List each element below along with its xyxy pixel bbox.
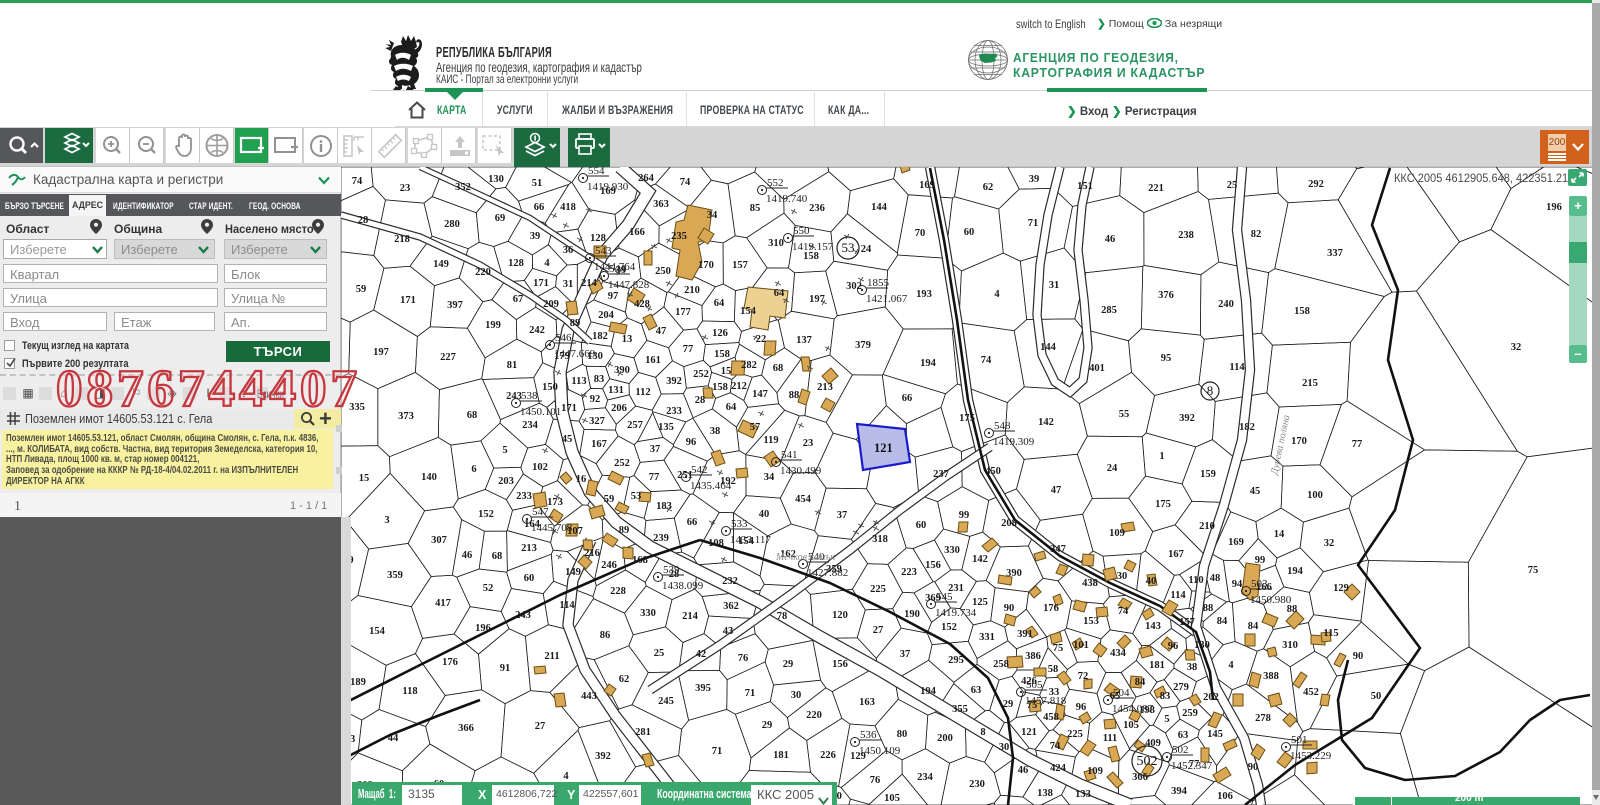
- svg-text:452: 452: [1303, 687, 1319, 698]
- svg-text:337: 337: [1327, 248, 1343, 259]
- svg-text:196: 196: [475, 623, 491, 634]
- svg-text:218: 218: [394, 234, 410, 245]
- svg-text:190: 190: [904, 609, 920, 620]
- svg-text:75: 75: [1528, 565, 1539, 576]
- svg-text:544: 544: [609, 263, 626, 275]
- svg-text:546: 546: [555, 332, 572, 344]
- svg-text:171: 171: [400, 295, 416, 306]
- svg-text:1435.464: 1435.464: [690, 480, 732, 492]
- svg-text:71: 71: [1028, 218, 1039, 229]
- svg-text:111: 111: [1103, 733, 1118, 744]
- svg-text:280: 280: [444, 219, 460, 230]
- svg-text:91: 91: [500, 663, 511, 674]
- svg-text:101: 101: [1073, 640, 1089, 651]
- svg-text:102: 102: [532, 462, 548, 473]
- svg-text:1421.067: 1421.067: [866, 293, 908, 305]
- svg-text:60: 60: [964, 227, 975, 238]
- svg-text:548: 548: [994, 420, 1011, 432]
- svg-text:23: 23: [400, 183, 411, 194]
- svg-text:34: 34: [764, 472, 775, 483]
- svg-text:194: 194: [920, 358, 937, 369]
- svg-text:31: 31: [1049, 280, 1060, 291]
- svg-text:252: 252: [693, 369, 709, 380]
- svg-text:395: 395: [695, 683, 711, 694]
- svg-text:46: 46: [462, 550, 473, 561]
- svg-text:40: 40: [759, 509, 770, 520]
- svg-text:4: 4: [994, 289, 1000, 300]
- svg-text:58: 58: [1048, 664, 1059, 675]
- svg-text:394: 394: [1171, 786, 1188, 797]
- svg-text:81: 81: [507, 360, 518, 371]
- svg-text:176: 176: [1043, 603, 1059, 614]
- svg-text:71: 71: [712, 746, 723, 757]
- svg-text:44: 44: [388, 733, 399, 744]
- svg-text:50: 50: [1371, 691, 1382, 702]
- svg-text:533: 533: [731, 518, 748, 530]
- svg-text:74: 74: [1118, 606, 1129, 617]
- svg-text:210: 210: [684, 285, 700, 296]
- svg-text:38: 38: [710, 426, 721, 437]
- svg-text:39: 39: [530, 231, 541, 242]
- svg-text:84: 84: [1135, 677, 1146, 688]
- svg-text:281: 281: [635, 727, 651, 738]
- svg-text:149: 149: [565, 567, 581, 578]
- svg-text:450: 450: [985, 466, 1001, 477]
- svg-text:545: 545: [936, 591, 953, 603]
- svg-text:438: 438: [1082, 578, 1098, 589]
- svg-text:68: 68: [773, 363, 784, 374]
- svg-text:1457.818: 1457.818: [1025, 695, 1067, 707]
- svg-text:212: 212: [731, 381, 747, 392]
- svg-text:331: 331: [979, 632, 995, 643]
- svg-text:391: 391: [1017, 629, 1033, 640]
- svg-text:307: 307: [431, 535, 447, 546]
- svg-text:112: 112: [635, 387, 650, 398]
- svg-text:68: 68: [492, 551, 503, 562]
- svg-text:46: 46: [1105, 234, 1116, 245]
- svg-text:130: 130: [1194, 640, 1210, 651]
- svg-text:37: 37: [900, 649, 911, 660]
- svg-text:137: 137: [796, 335, 812, 346]
- svg-text:295: 295: [948, 655, 964, 666]
- svg-text:29: 29: [783, 659, 794, 670]
- svg-text:128: 128: [590, 233, 606, 244]
- svg-text:88: 88: [789, 390, 800, 401]
- svg-text:90: 90: [1248, 762, 1259, 773]
- svg-text:1450.109: 1450.109: [859, 745, 901, 757]
- svg-text:401: 401: [1089, 363, 1105, 374]
- svg-text:149: 149: [433, 259, 449, 270]
- svg-text:536: 536: [860, 729, 877, 741]
- svg-text:1452.347: 1452.347: [1171, 760, 1213, 772]
- svg-text:106: 106: [1217, 791, 1233, 802]
- svg-text:216: 216: [584, 548, 600, 559]
- svg-text:38: 38: [1187, 662, 1198, 673]
- svg-text:171: 171: [561, 403, 577, 414]
- svg-text:80: 80: [897, 729, 908, 740]
- svg-text:177: 177: [675, 307, 691, 318]
- svg-text:31: 31: [563, 279, 574, 290]
- svg-text:22: 22: [756, 334, 767, 345]
- svg-text:66: 66: [534, 202, 545, 213]
- svg-text:15: 15: [721, 366, 732, 377]
- svg-text:373: 373: [398, 411, 414, 422]
- svg-text:166: 166: [629, 227, 645, 238]
- svg-text:194: 194: [1287, 566, 1304, 577]
- svg-text:131: 131: [608, 385, 624, 396]
- svg-text:152: 152: [941, 622, 957, 633]
- svg-text:47: 47: [656, 326, 667, 337]
- svg-text:279: 279: [1173, 682, 1189, 693]
- svg-text:176: 176: [442, 657, 458, 668]
- svg-text:88: 88: [1203, 603, 1214, 614]
- svg-text:145: 145: [1207, 729, 1223, 740]
- svg-text:30: 30: [999, 742, 1010, 753]
- svg-text:225: 225: [1067, 729, 1083, 740]
- svg-text:454: 454: [795, 494, 812, 505]
- svg-text:25: 25: [1227, 180, 1238, 191]
- svg-text:1453.229: 1453.229: [1290, 750, 1332, 762]
- svg-text:352: 352: [455, 182, 471, 193]
- svg-text:182: 182: [1239, 422, 1255, 433]
- svg-text:206: 206: [611, 403, 627, 414]
- svg-text:388: 388: [1263, 671, 1279, 682]
- svg-text:74: 74: [1050, 741, 1061, 752]
- svg-text:154: 154: [369, 626, 386, 637]
- svg-text:83: 83: [1160, 691, 1171, 702]
- svg-text:118: 118: [402, 686, 417, 697]
- svg-text:72: 72: [1078, 671, 1089, 682]
- svg-text:538: 538: [521, 390, 538, 402]
- svg-text:170: 170: [698, 260, 714, 271]
- svg-text:541: 541: [781, 449, 798, 461]
- svg-text:366: 366: [458, 723, 474, 734]
- svg-text:539: 539: [663, 564, 680, 576]
- svg-text:213: 213: [521, 543, 537, 554]
- svg-text:225: 225: [870, 584, 886, 595]
- svg-text:74: 74: [981, 355, 992, 366]
- svg-text:13: 13: [622, 334, 633, 345]
- svg-text:121: 121: [874, 441, 893, 455]
- svg-text:167: 167: [1168, 549, 1184, 560]
- svg-text:45: 45: [562, 434, 573, 445]
- svg-text:76: 76: [738, 653, 749, 664]
- svg-text:252: 252: [614, 458, 630, 469]
- svg-text:109: 109: [1087, 766, 1103, 777]
- svg-text:71: 71: [745, 688, 756, 699]
- svg-text:140: 140: [421, 472, 437, 483]
- svg-text:89: 89: [570, 318, 581, 329]
- svg-text:213: 213: [817, 382, 833, 393]
- svg-text:16: 16: [576, 474, 587, 485]
- svg-text:550: 550: [793, 225, 810, 237]
- svg-text:105: 105: [1123, 720, 1139, 731]
- svg-text:29: 29: [1003, 699, 1014, 710]
- svg-text:168: 168: [632, 555, 648, 566]
- svg-text:128: 128: [508, 258, 524, 269]
- svg-text:285: 285: [1101, 305, 1117, 316]
- svg-text:397: 397: [447, 300, 463, 311]
- svg-text:60: 60: [524, 573, 535, 584]
- svg-text:318: 318: [872, 534, 888, 545]
- svg-text:233: 233: [516, 491, 532, 502]
- svg-text:175: 175: [1155, 499, 1171, 510]
- svg-text:169: 169: [919, 180, 935, 191]
- svg-text:24: 24: [861, 244, 872, 255]
- svg-text:48: 48: [1210, 573, 1221, 584]
- svg-text:1450.980: 1450.980: [1250, 594, 1292, 606]
- svg-text:228: 228: [610, 586, 626, 597]
- svg-text:209: 209: [543, 299, 559, 310]
- svg-text:310: 310: [1282, 640, 1298, 651]
- svg-text:142: 142: [972, 554, 988, 565]
- svg-text:196: 196: [1546, 202, 1562, 213]
- svg-text:359: 359: [387, 570, 403, 581]
- svg-text:214: 214: [581, 278, 598, 289]
- svg-text:28: 28: [358, 215, 369, 226]
- svg-text:143: 143: [1145, 621, 1161, 632]
- svg-text:8: 8: [1207, 383, 1214, 398]
- svg-text:70: 70: [915, 228, 926, 239]
- svg-text:96: 96: [1168, 641, 1179, 652]
- svg-text:327: 327: [589, 416, 605, 427]
- svg-text:84: 84: [1248, 621, 1259, 632]
- svg-text:189: 189: [350, 677, 366, 688]
- svg-text:86: 86: [600, 630, 611, 641]
- svg-text:4: 4: [544, 258, 550, 269]
- svg-text:8: 8: [980, 727, 985, 738]
- svg-text:62: 62: [983, 182, 994, 193]
- svg-text:113: 113: [571, 376, 586, 387]
- svg-text:32: 32: [1511, 342, 1522, 353]
- svg-text:502: 502: [1137, 754, 1158, 769]
- svg-text:200: 200: [937, 733, 953, 744]
- svg-text:236: 236: [809, 203, 825, 214]
- svg-text:1450.101: 1450.101: [520, 406, 561, 418]
- svg-text:94: 94: [1232, 579, 1243, 590]
- svg-text:64: 64: [714, 298, 725, 309]
- svg-text:1447.828: 1447.828: [608, 279, 650, 291]
- svg-text:96: 96: [686, 437, 697, 448]
- svg-text:226: 226: [820, 750, 836, 761]
- svg-text:1: 1: [1159, 451, 1164, 462]
- svg-text:30: 30: [1117, 571, 1128, 582]
- svg-text:121: 121: [1021, 727, 1037, 738]
- svg-text:547: 547: [532, 506, 549, 518]
- svg-text:153: 153: [1083, 616, 1099, 627]
- svg-text:4: 4: [1228, 660, 1234, 671]
- svg-text:52: 52: [483, 583, 494, 594]
- svg-text:554: 554: [588, 167, 605, 177]
- svg-text:170: 170: [1291, 436, 1307, 447]
- svg-text:211: 211: [544, 651, 559, 662]
- svg-text:76: 76: [870, 775, 881, 786]
- svg-text:42: 42: [696, 649, 707, 660]
- svg-text:232: 232: [722, 576, 738, 587]
- svg-text:135: 135: [658, 422, 674, 433]
- svg-text:347: 347: [1050, 544, 1066, 555]
- svg-text:114: 114: [559, 600, 575, 611]
- svg-text:428: 428: [634, 299, 650, 310]
- svg-text:159: 159: [1200, 469, 1216, 480]
- svg-text:64: 64: [726, 402, 737, 413]
- svg-text:245: 245: [658, 696, 674, 707]
- svg-text:379: 379: [855, 340, 871, 351]
- svg-text:220: 220: [806, 710, 822, 721]
- svg-text:84: 84: [1217, 616, 1228, 627]
- svg-text:330: 330: [640, 608, 656, 619]
- svg-text:151: 151: [1077, 181, 1093, 192]
- svg-text:158: 158: [712, 382, 728, 393]
- svg-text:242: 242: [529, 325, 545, 336]
- svg-text:92: 92: [590, 394, 601, 405]
- svg-text:5: 5: [1164, 714, 1169, 725]
- svg-text:46: 46: [1018, 765, 1029, 776]
- svg-text:119: 119: [763, 435, 778, 446]
- svg-text:25: 25: [654, 648, 665, 659]
- svg-text:78: 78: [777, 611, 788, 622]
- svg-text:250: 250: [655, 266, 671, 277]
- svg-text:30: 30: [791, 690, 802, 701]
- svg-text:59: 59: [356, 284, 367, 295]
- svg-text:24: 24: [1107, 463, 1118, 474]
- svg-text:114: 114: [1229, 362, 1245, 373]
- svg-text:233: 233: [666, 406, 682, 417]
- svg-text:57: 57: [750, 422, 761, 433]
- svg-text:114: 114: [1170, 590, 1186, 601]
- svg-text:34: 34: [707, 210, 718, 221]
- svg-text:458: 458: [1043, 712, 1059, 723]
- svg-text:77: 77: [649, 472, 660, 483]
- svg-text:63: 63: [971, 685, 982, 696]
- svg-text:543: 543: [595, 245, 612, 257]
- svg-text:194: 194: [920, 686, 937, 697]
- svg-text:1419.734: 1419.734: [935, 607, 977, 619]
- svg-text:258: 258: [993, 659, 1009, 670]
- svg-text:14: 14: [1274, 529, 1285, 540]
- svg-text:157: 157: [1179, 617, 1195, 628]
- svg-text:1454.087: 1454.087: [1112, 703, 1154, 715]
- svg-text:120: 120: [832, 610, 848, 621]
- svg-text:115: 115: [1323, 628, 1338, 639]
- svg-text:208: 208: [1001, 518, 1017, 529]
- svg-text:203: 203: [498, 476, 514, 487]
- svg-text:282: 282: [741, 360, 757, 371]
- svg-text:85: 85: [750, 203, 761, 214]
- svg-text:197: 197: [373, 347, 389, 358]
- svg-text:74: 74: [352, 176, 363, 187]
- svg-text:193: 193: [916, 289, 932, 300]
- svg-text:1447.669: 1447.669: [554, 348, 596, 360]
- svg-text:214: 214: [682, 611, 699, 622]
- svg-text:5: 5: [502, 445, 507, 456]
- svg-text:55: 55: [1119, 409, 1130, 420]
- svg-text:97: 97: [608, 291, 619, 302]
- svg-text:238: 238: [1178, 230, 1194, 241]
- svg-text:502: 502: [1172, 744, 1189, 756]
- svg-text:77: 77: [683, 344, 694, 355]
- svg-text:243: 243: [515, 610, 531, 621]
- svg-text:147: 147: [752, 389, 768, 400]
- svg-text:105: 105: [884, 793, 900, 804]
- svg-text:235: 235: [671, 231, 687, 242]
- svg-text:133: 133: [1075, 789, 1091, 800]
- svg-text:60: 60: [916, 520, 927, 531]
- svg-text:199: 199: [485, 320, 501, 331]
- svg-text:264: 264: [638, 173, 655, 184]
- svg-text:51: 51: [532, 178, 543, 189]
- svg-text:27: 27: [873, 625, 884, 636]
- svg-text:138: 138: [1037, 788, 1053, 799]
- svg-text:376: 376: [1158, 290, 1174, 301]
- svg-text:154: 154: [740, 306, 757, 317]
- svg-text:Мечков камък: Мечков камък: [775, 552, 835, 563]
- svg-text:424: 424: [1050, 763, 1067, 774]
- svg-text:64: 64: [774, 288, 785, 299]
- svg-text:109: 109: [1109, 528, 1125, 539]
- svg-text:152: 152: [478, 509, 494, 520]
- svg-text:392: 392: [666, 376, 682, 387]
- svg-text:434: 434: [1110, 648, 1127, 659]
- svg-text:362: 362: [723, 601, 739, 612]
- svg-text:144: 144: [1040, 342, 1057, 353]
- svg-text:278: 278: [1255, 713, 1271, 724]
- svg-text:99: 99: [1255, 555, 1266, 566]
- svg-text:1445.708: 1445.708: [531, 522, 573, 534]
- svg-text:66: 66: [902, 393, 913, 404]
- svg-text:1419.930: 1419.930: [587, 181, 629, 193]
- svg-text:66: 66: [687, 517, 698, 528]
- svg-text:220: 220: [475, 267, 491, 278]
- svg-text:1419.740: 1419.740: [766, 193, 808, 205]
- svg-text:1433.117: 1433.117: [730, 534, 771, 546]
- svg-text:130: 130: [488, 174, 504, 185]
- svg-text:158: 158: [714, 349, 730, 360]
- svg-text:53: 53: [631, 491, 642, 502]
- svg-text:240: 240: [1218, 299, 1234, 310]
- svg-text:82: 82: [1251, 229, 1262, 240]
- svg-text:169: 169: [1228, 537, 1244, 548]
- svg-text:386: 386: [1025, 651, 1041, 662]
- svg-text:40: 40: [1146, 576, 1157, 587]
- svg-text:392: 392: [595, 751, 611, 762]
- svg-text:392: 392: [1179, 413, 1195, 424]
- svg-text:4: 4: [563, 771, 569, 782]
- svg-text:505: 505: [1026, 679, 1043, 691]
- svg-text:230: 230: [969, 779, 985, 790]
- svg-text:183: 183: [656, 501, 672, 512]
- svg-text:330: 330: [944, 545, 960, 556]
- svg-text:1427.882: 1427.882: [807, 567, 848, 579]
- svg-text:156: 156: [832, 659, 848, 670]
- svg-text:542: 542: [691, 464, 708, 476]
- svg-text:142: 142: [1038, 417, 1054, 428]
- svg-text:95: 95: [1161, 353, 1172, 364]
- svg-text:68: 68: [467, 410, 478, 421]
- svg-text:204: 204: [598, 310, 615, 321]
- svg-text:67: 67: [513, 294, 524, 305]
- svg-text:257: 257: [627, 420, 643, 431]
- svg-text:355: 355: [952, 704, 968, 715]
- svg-text:215: 215: [1302, 378, 1318, 389]
- svg-text:173: 173: [547, 497, 563, 508]
- svg-text:417: 417: [435, 598, 451, 609]
- svg-text:223: 223: [901, 567, 917, 578]
- svg-text:83: 83: [594, 374, 605, 385]
- svg-text:74: 74: [680, 177, 691, 188]
- svg-text:89: 89: [619, 525, 630, 536]
- svg-text:171: 171: [533, 278, 549, 289]
